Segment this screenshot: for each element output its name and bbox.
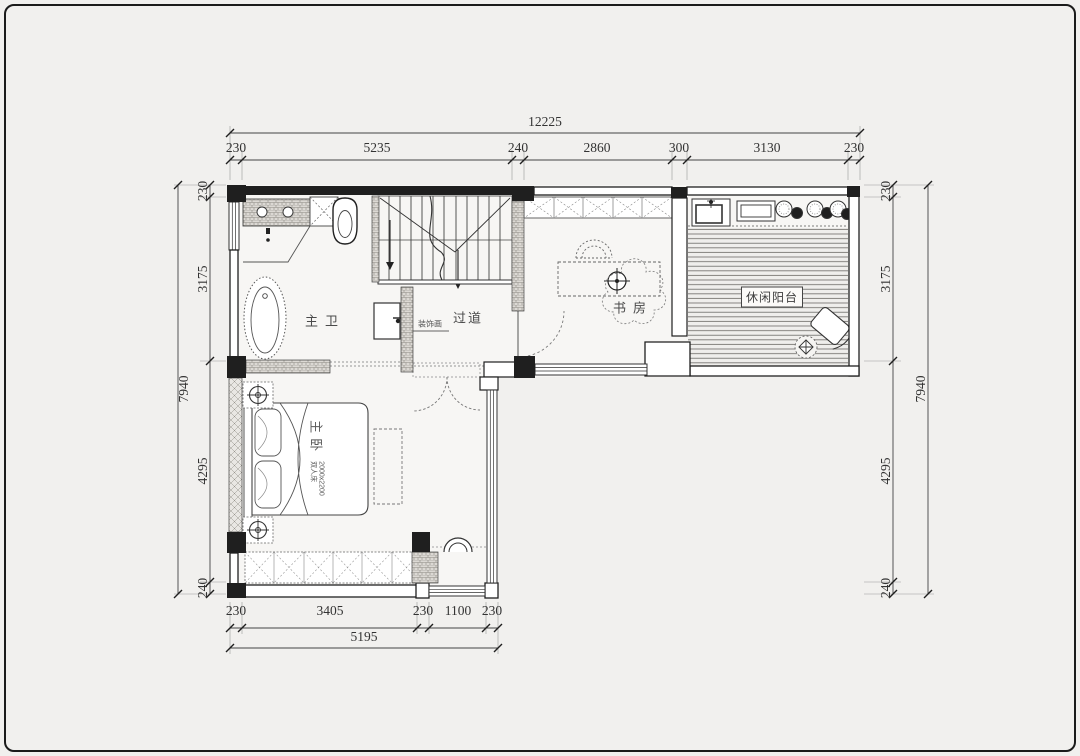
potted-plants <box>776 201 853 220</box>
dim-top-seg: 5235 <box>364 140 391 156</box>
study-cabinet <box>524 197 672 218</box>
dim-top-seg: 300 <box>669 140 689 156</box>
dim-left-seg: 3175 <box>195 266 211 293</box>
wall-right-balcony <box>849 187 859 376</box>
toilet <box>333 198 357 244</box>
dim-top-seg: 3130 <box>754 140 781 156</box>
dim-bottom-seg: 230 <box>482 603 502 619</box>
wall-bottom-bedroom <box>230 585 417 597</box>
dim-left-seg: 4295 <box>195 458 211 485</box>
dim-bottom-seg: 230 <box>413 603 433 619</box>
dim-bottom-seg: 1100 <box>445 603 472 619</box>
nightstand-bottom <box>243 517 273 543</box>
wall-pier <box>485 583 498 598</box>
wall-stairs-left <box>372 196 379 282</box>
dim-right-seg: 4295 <box>878 458 894 485</box>
wall-pier <box>484 362 515 377</box>
wall-study-balcony <box>672 198 687 336</box>
room-label-hallway: 过道 <box>453 308 483 327</box>
bed <box>244 391 368 527</box>
wall-left-lower <box>230 553 238 585</box>
floor-drain <box>795 336 817 358</box>
wall-bottom-balcony <box>690 366 859 376</box>
floor-plan-page: { "colors": { "background": "#f1f0ee", "… <box>0 0 1080 756</box>
room-label-leisure-balcony: 休闲阳台 <box>741 287 803 308</box>
bathtub <box>244 277 286 359</box>
bed-label: 主卧 2000x2200 双人床 <box>308 420 327 496</box>
dim-bottom-total: 5195 <box>351 629 378 645</box>
wall-corner-piece <box>645 342 690 376</box>
dim-top-total: 12225 <box>528 114 562 130</box>
nightstand-top <box>243 382 273 408</box>
room-label-master-bedroom: 主卧 <box>308 420 327 456</box>
dim-right-seg: 240 <box>878 578 894 598</box>
balcony-sink <box>692 199 730 226</box>
dim-top-seg: 2860 <box>584 140 611 156</box>
dim-top-seg: 230 <box>844 140 864 156</box>
wall-bath-bedroom <box>246 360 330 373</box>
wall-left-bath <box>230 250 238 357</box>
dim-top-seg: 230 <box>226 140 246 156</box>
wall-left-bedroom <box>229 378 242 532</box>
room-label-master-bath: 主卫 <box>305 311 345 330</box>
dim-left-total: 7940 <box>176 376 192 403</box>
wall-pier <box>480 377 498 390</box>
wall-top-balcony <box>687 187 849 195</box>
bed-size-label: 2000x2200 <box>317 461 325 496</box>
wall-pier-brick <box>412 552 438 583</box>
window-bedroom-right <box>487 390 497 583</box>
wall-top-study <box>534 187 672 195</box>
dim-bottom-seg: 3405 <box>317 603 344 619</box>
bed-type-label: 双人床 <box>309 461 317 496</box>
room-label-study: 书房 <box>613 298 653 317</box>
wall-hallway-bath <box>401 287 413 372</box>
wall-hallway-study <box>512 201 524 311</box>
window-left-bath <box>229 202 239 250</box>
wardrobe <box>245 552 421 583</box>
wall-pier <box>416 583 429 598</box>
window-bedroom-bottom <box>429 586 485 596</box>
window-study-bottom <box>535 364 647 375</box>
balcony-planter-tray <box>737 201 775 221</box>
dim-top-seg: 240 <box>508 140 528 156</box>
dim-left-seg: 240 <box>195 578 211 598</box>
dim-bottom-seg: 230 <box>226 603 246 619</box>
dim-left-seg: 230 <box>195 181 211 201</box>
annotation-decor-painting: 装饰画 <box>418 319 442 330</box>
dim-right-seg: 3175 <box>878 266 894 293</box>
dim-right-total: 7940 <box>913 376 929 403</box>
wall-top-solid <box>230 186 512 195</box>
hall-cabinet <box>374 303 401 339</box>
dim-right-seg: 230 <box>878 181 894 201</box>
